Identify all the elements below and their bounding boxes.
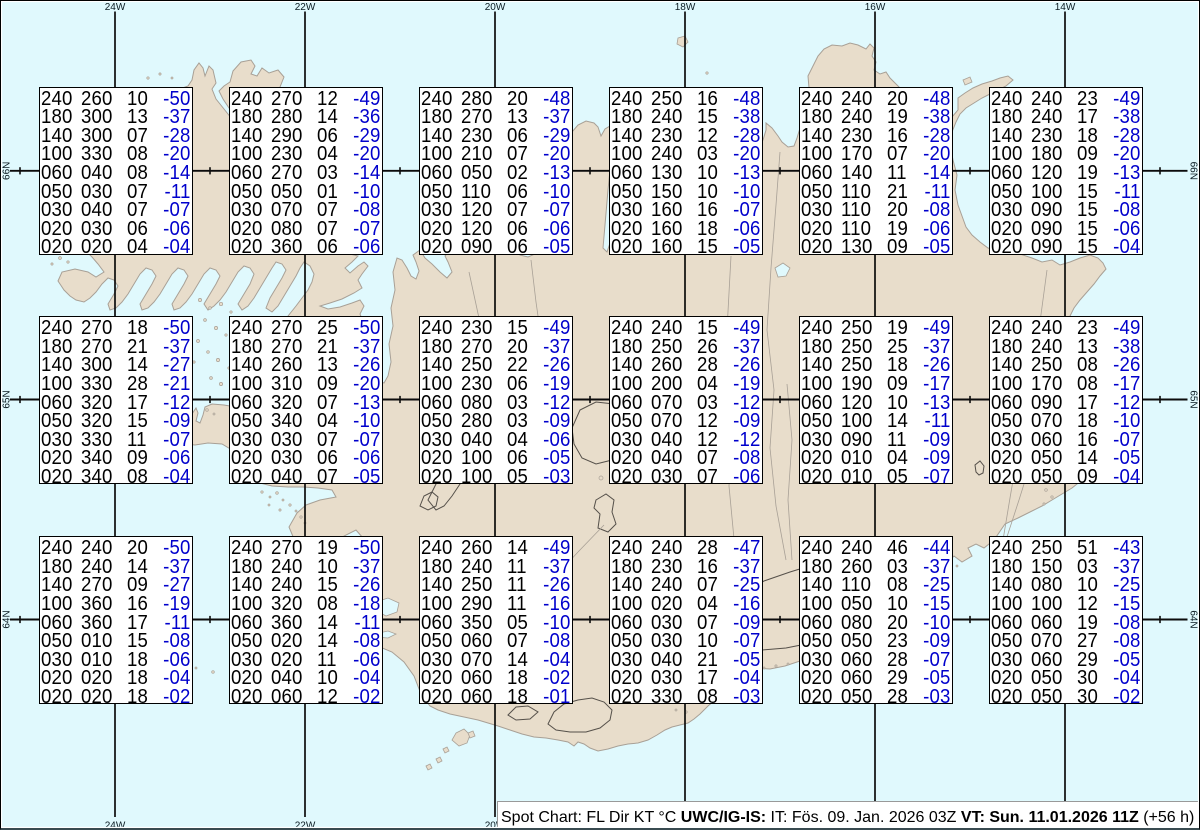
svg-text:22W: 22W [295,821,316,830]
svg-text:66N: 66N [1188,162,1199,180]
svg-text:18W: 18W [675,2,696,13]
svg-text:65N: 65N [1,390,12,408]
svg-text:64N: 64N [1188,610,1199,628]
svg-text:22W: 22W [295,2,316,13]
svg-text:65N: 65N [1188,390,1199,408]
svg-text:24W: 24W [105,821,126,830]
svg-text:24W: 24W [105,2,126,13]
svg-text:14W: 14W [1055,2,1076,13]
svg-text:66N: 66N [1,162,12,180]
svg-text:16W: 16W [865,2,886,13]
svg-text:64N: 64N [1,610,12,628]
svg-text:20W: 20W [485,2,506,13]
